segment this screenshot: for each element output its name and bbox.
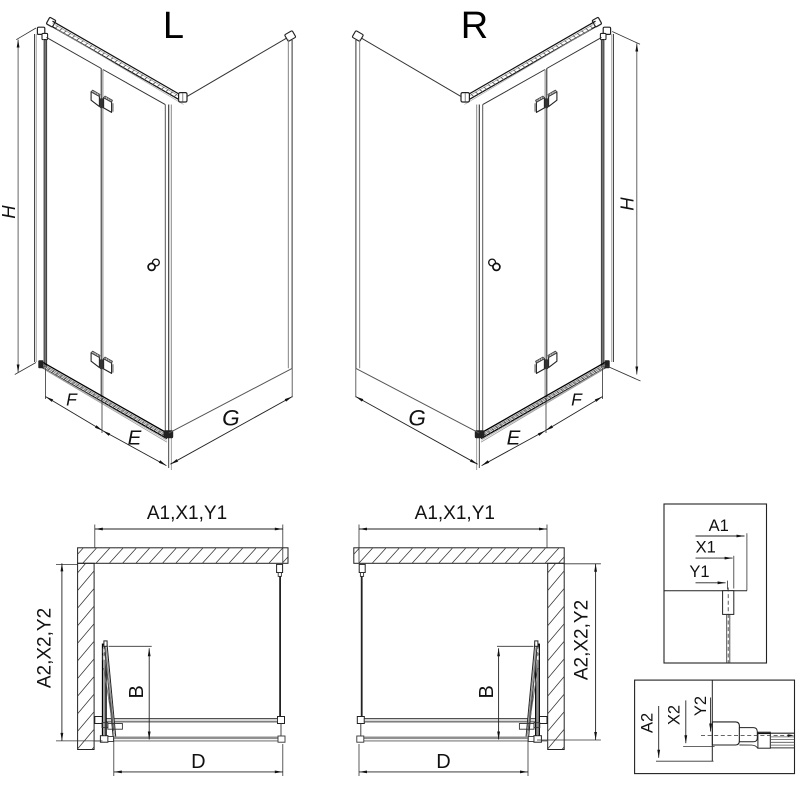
svg-text:A2,X2,Y2: A2,X2,Y2 <box>572 600 593 680</box>
svg-text:Y2: Y2 <box>692 696 710 716</box>
svg-text:L: L <box>163 5 184 47</box>
svg-text:X1: X1 <box>696 538 716 556</box>
svg-text:A1,X1,Y1: A1,X1,Y1 <box>415 503 495 524</box>
svg-text:X2: X2 <box>666 705 684 725</box>
svg-text:H: H <box>616 197 637 211</box>
svg-text:D: D <box>436 751 450 773</box>
svg-text:E: E <box>128 427 142 450</box>
svg-text:A1: A1 <box>709 517 729 535</box>
svg-text:B: B <box>476 685 498 698</box>
svg-text:B: B <box>126 685 148 698</box>
svg-text:F: F <box>571 390 583 410</box>
svg-text:G: G <box>408 406 426 431</box>
svg-text:D: D <box>191 751 205 773</box>
svg-text:A2,X2,Y2: A2,X2,Y2 <box>35 608 56 688</box>
svg-text:R: R <box>461 5 488 47</box>
svg-text:G: G <box>222 406 240 431</box>
svg-text:A1,X1,Y1: A1,X1,Y1 <box>147 503 227 524</box>
svg-text:E: E <box>507 427 521 450</box>
svg-text:A2: A2 <box>639 713 657 733</box>
svg-text:Y1: Y1 <box>689 563 709 581</box>
svg-text:H: H <box>0 205 19 219</box>
svg-text:F: F <box>66 390 78 410</box>
